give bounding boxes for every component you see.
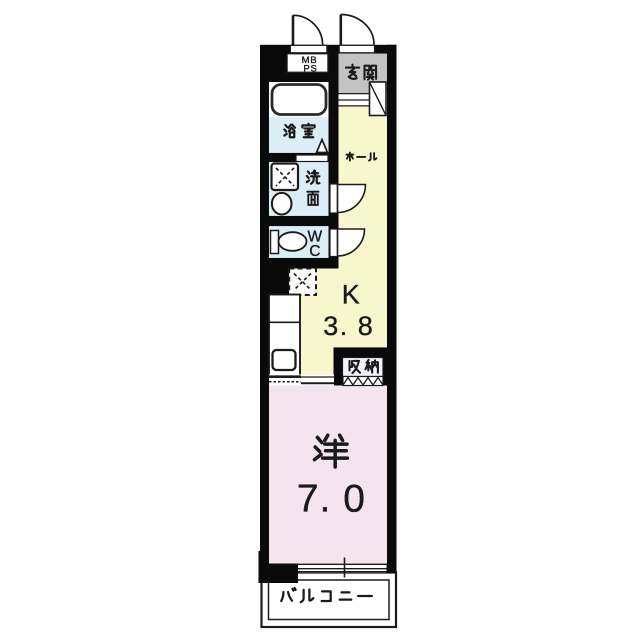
svg-text:K: K bbox=[342, 280, 360, 310]
svg-text:3. 8: 3. 8 bbox=[323, 311, 374, 341]
svg-text:7. 0: 7. 0 bbox=[297, 478, 366, 521]
svg-text:C: C bbox=[309, 243, 320, 260]
svg-text:PS: PS bbox=[303, 64, 317, 75]
